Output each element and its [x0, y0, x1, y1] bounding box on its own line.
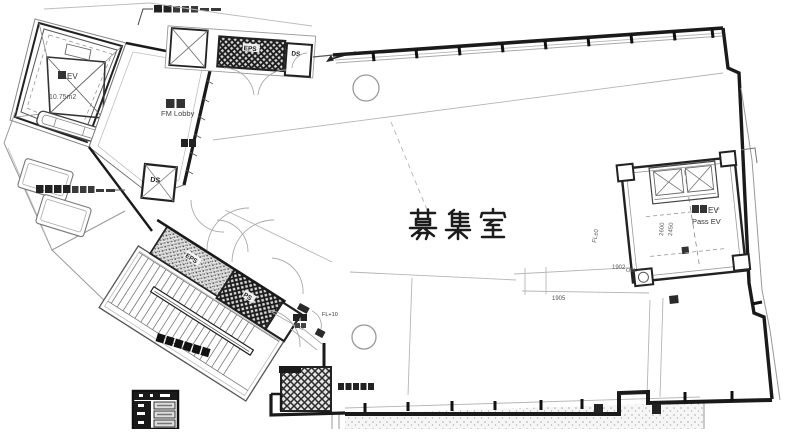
- svg-text:DS: DS: [291, 51, 301, 59]
- svg-text:FM Lobby: FM Lobby: [161, 109, 195, 118]
- svg-text:Pass EV: Pass EV: [692, 217, 721, 226]
- svg-text:EPS: EPS: [243, 45, 257, 53]
- svg-text:EV: EV: [708, 206, 719, 215]
- svg-text:FL+10: FL+10: [322, 312, 338, 318]
- svg-text:1902: 1902: [612, 265, 626, 271]
- svg-text:OBL: OBL: [626, 268, 637, 274]
- svg-text:2600: 2600: [659, 222, 666, 236]
- svg-text:DS: DS: [150, 177, 161, 185]
- svg-text:1905: 1905: [552, 296, 566, 302]
- svg-text:EV: EV: [67, 72, 78, 81]
- svg-text:2450: 2450: [668, 222, 675, 236]
- svg-text:10.75m2: 10.75m2: [49, 94, 76, 101]
